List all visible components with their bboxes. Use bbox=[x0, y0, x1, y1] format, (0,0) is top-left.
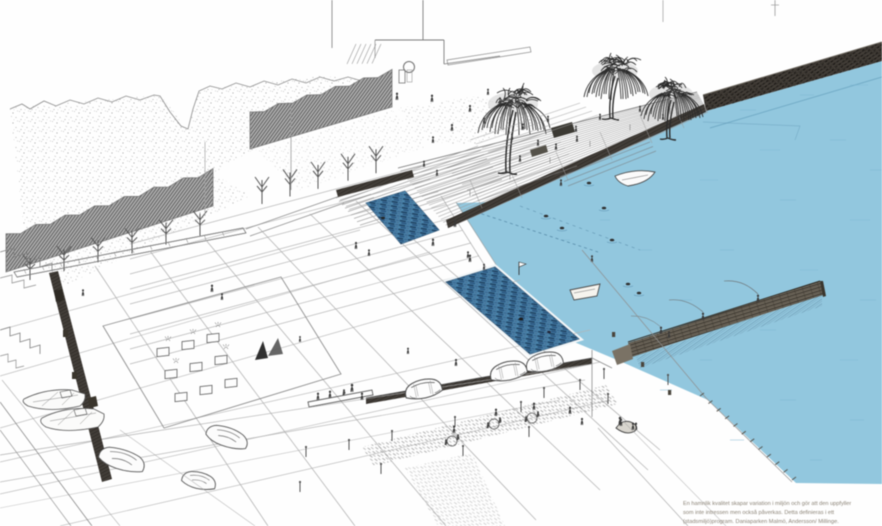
svg-text:(stadsmiljö)program. Daniapark: (stadsmiljö)program. Daniaparken Malmö, … bbox=[683, 519, 839, 525]
svg-text:som inte intressen men också p: som inte intressen men också påverkas. D… bbox=[683, 509, 835, 516]
svg-text:En hamnlik kvalitet skapar var: En hamnlik kvalitet skapar variation i m… bbox=[683, 501, 851, 507]
